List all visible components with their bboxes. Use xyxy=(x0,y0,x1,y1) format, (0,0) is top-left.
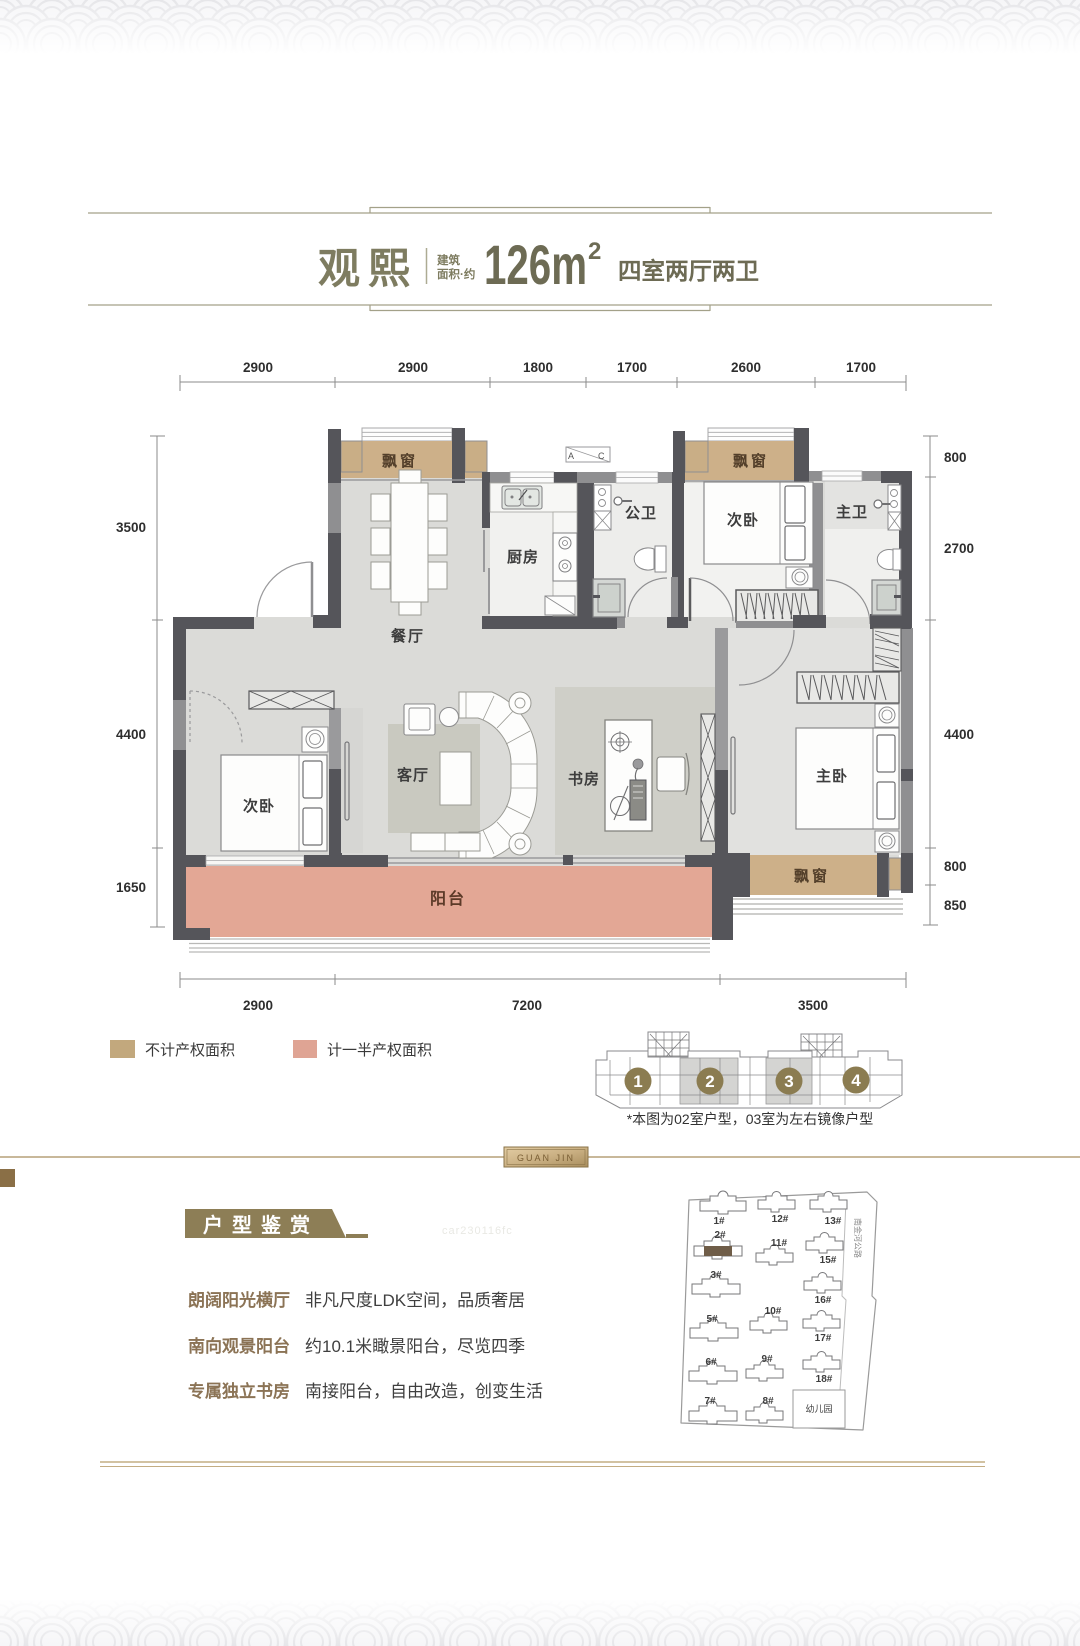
svg-text:计一半产权面积: 计一半产权面积 xyxy=(327,1042,432,1059)
svg-text:南金河公路: 南金河公路 xyxy=(853,1218,863,1258)
svg-text:11#: 11# xyxy=(771,1238,788,1249)
svg-text:3500: 3500 xyxy=(798,998,828,1013)
svg-text:15#: 15# xyxy=(820,1255,837,1266)
svg-text:18#: 18# xyxy=(816,1374,833,1385)
svg-text:7200: 7200 xyxy=(512,998,542,1013)
svg-text:书房: 书房 xyxy=(568,770,600,788)
svg-text:2700: 2700 xyxy=(944,541,974,556)
svg-text:四室两厅两卫: 四室两厅两卫 xyxy=(618,257,759,284)
svg-text:2#: 2# xyxy=(714,1230,726,1241)
svg-text:4400: 4400 xyxy=(116,727,146,742)
svg-text:建筑: 建筑 xyxy=(437,253,460,267)
svg-text:1800: 1800 xyxy=(523,360,553,375)
svg-text:9#: 9# xyxy=(761,1354,773,1365)
svg-text:13#: 13# xyxy=(825,1216,842,1227)
svg-text:次卧: 次卧 xyxy=(727,511,759,529)
svg-text:客厅: 客厅 xyxy=(396,766,429,784)
svg-text:南接阳台，自由改造，创变生活: 南接阳台，自由改造，创变生活 xyxy=(305,1382,543,1401)
svg-text:2: 2 xyxy=(588,238,601,265)
svg-text:8#: 8# xyxy=(762,1396,774,1407)
svg-text:4: 4 xyxy=(851,1071,861,1090)
svg-text:飘窗: 飘窗 xyxy=(733,452,769,470)
svg-text:1700: 1700 xyxy=(617,360,647,375)
svg-text:16#: 16# xyxy=(815,1295,832,1306)
svg-text:1#: 1# xyxy=(713,1216,725,1227)
svg-text:C: C xyxy=(598,451,605,461)
svg-text:5#: 5# xyxy=(706,1314,718,1325)
svg-text:2600: 2600 xyxy=(731,360,761,375)
svg-text:公卫: 公卫 xyxy=(625,505,657,522)
svg-text:800: 800 xyxy=(944,859,967,874)
svg-text:6#: 6# xyxy=(705,1357,717,1368)
svg-text:面积·约: 面积·约 xyxy=(437,267,475,281)
svg-text:阳台: 阳台 xyxy=(430,889,466,908)
svg-text:7#: 7# xyxy=(704,1396,716,1407)
svg-text:朗阔阳光横厅: 朗阔阳光横厅 xyxy=(188,1290,290,1310)
svg-text:幼儿园: 幼儿园 xyxy=(805,1403,832,1414)
svg-text:厨房: 厨房 xyxy=(507,548,539,566)
svg-text:4400: 4400 xyxy=(944,727,974,742)
svg-text:3#: 3# xyxy=(710,1270,722,1281)
svg-text:1700: 1700 xyxy=(846,360,876,375)
svg-text:850: 850 xyxy=(944,898,967,913)
svg-text:1: 1 xyxy=(633,1072,642,1091)
svg-text:17#: 17# xyxy=(815,1333,832,1344)
svg-text:2: 2 xyxy=(705,1072,714,1091)
svg-text:2900: 2900 xyxy=(243,360,273,375)
svg-text:主卫: 主卫 xyxy=(836,503,868,521)
svg-text:3500: 3500 xyxy=(116,520,146,535)
svg-text:A: A xyxy=(568,451,574,461)
svg-text:餐厅: 餐厅 xyxy=(391,627,425,645)
svg-text:800: 800 xyxy=(944,450,967,465)
svg-text:3: 3 xyxy=(784,1072,793,1091)
svg-text:观熙: 观熙 xyxy=(318,245,418,292)
svg-text:10#: 10# xyxy=(765,1306,782,1317)
svg-text:飘窗: 飘窗 xyxy=(794,867,830,885)
svg-text:专属独立书房: 专属独立书房 xyxy=(188,1381,290,1401)
svg-text:飘窗: 飘窗 xyxy=(382,452,418,470)
svg-text:户型鉴赏: 户型鉴赏 xyxy=(203,1213,319,1237)
svg-text:GUAN JIN: GUAN JIN xyxy=(517,1153,575,1163)
svg-text:2900: 2900 xyxy=(243,998,273,1013)
svg-text:126m: 126m xyxy=(484,233,587,296)
svg-text:非凡尺度LDK空间，品质奢居: 非凡尺度LDK空间，品质奢居 xyxy=(305,1291,525,1310)
svg-text:car230116fc: car230116fc xyxy=(442,1225,513,1237)
svg-text:次卧: 次卧 xyxy=(243,797,275,815)
svg-text:约10.1米瞰景阳台，尽览四季: 约10.1米瞰景阳台，尽览四季 xyxy=(305,1337,525,1356)
svg-text:不计产权面积: 不计产权面积 xyxy=(145,1042,235,1059)
svg-text:主卧: 主卧 xyxy=(816,767,848,785)
svg-text:1650: 1650 xyxy=(116,880,146,895)
svg-text:12#: 12# xyxy=(772,1214,789,1225)
svg-text:2900: 2900 xyxy=(398,360,428,375)
svg-text:南向观景阳台: 南向观景阳台 xyxy=(188,1336,290,1356)
svg-text:*本图为02室户型，03室为左右镜像户型: *本图为02室户型，03室为左右镜像户型 xyxy=(627,1111,874,1127)
